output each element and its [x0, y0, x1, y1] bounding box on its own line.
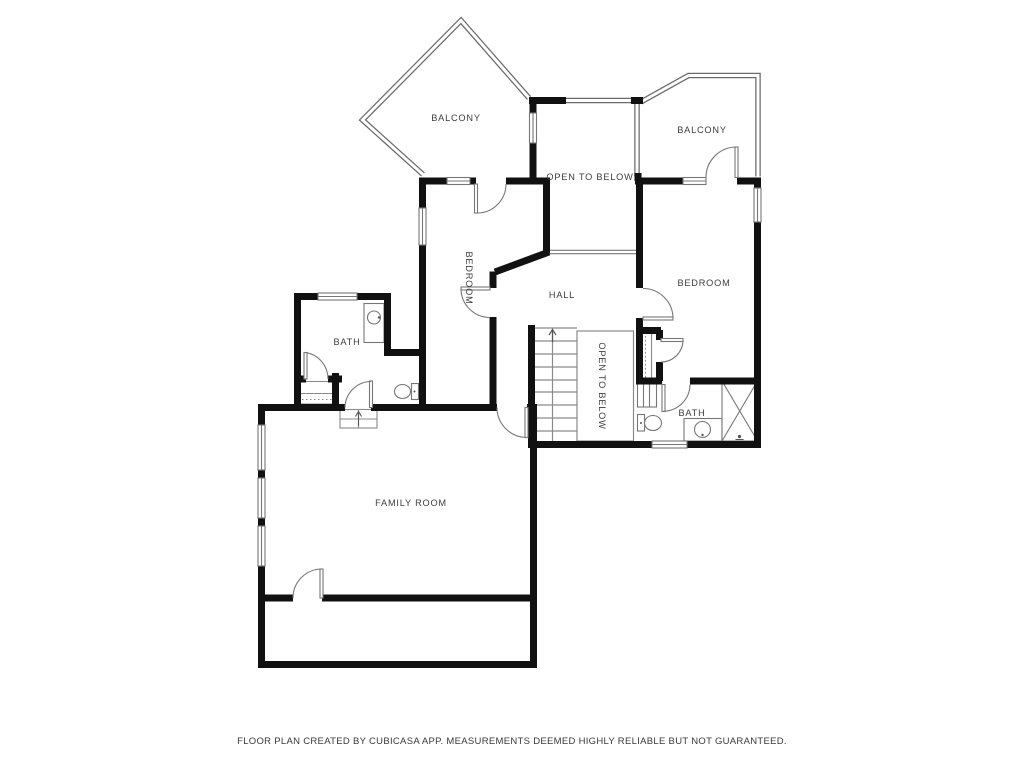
room-label-bedroom-left: BEDROOM [464, 251, 474, 304]
window-icon [258, 526, 265, 566]
window-icon [258, 425, 265, 470]
room-label-bath-left: BATH [333, 337, 360, 347]
room-label-balcony-right: BALCONY [677, 125, 727, 135]
shower-icon [722, 381, 758, 441]
window-icon [683, 178, 706, 185]
wardrobe-dashed [300, 382, 337, 405]
door-swings [293, 147, 738, 598]
entry-steps [340, 410, 377, 429]
window-icon [258, 478, 265, 518]
door-swing-icon [661, 339, 683, 363]
floor-plan-page: PATIO [0, 0, 1024, 768]
room-label-bath-right: BATH [678, 408, 705, 418]
door-swing-icon [497, 408, 528, 438]
stairs [535, 328, 577, 444]
door-swing-icon [475, 184, 507, 213]
room-label-hall: HALL [549, 290, 575, 300]
sink-vanity-left [364, 304, 384, 343]
window-icon [447, 178, 470, 185]
door-swing-icon [643, 289, 673, 321]
door-swing-icon [304, 353, 328, 380]
room-label-family-room: FAMILY ROOM [375, 498, 447, 508]
stairs-up-arrow-icon [549, 330, 556, 343]
door-swing-icon [345, 381, 373, 408]
room-label-open-to-below-stairs: OPEN TO BELOW [597, 342, 607, 429]
footer-disclaimer: FLOOR PLAN CREATED BY CUBICASA APP. MEAS… [237, 736, 787, 747]
door-swing-icon [293, 569, 323, 598]
toilet-right-icon [638, 415, 662, 432]
window-icon [318, 293, 357, 300]
door-swing-icon [706, 147, 738, 178]
window-icon [530, 113, 537, 143]
window-icon [652, 441, 687, 448]
window-icon [419, 208, 426, 245]
room-label-balcony-left: BALCONY [431, 113, 481, 123]
room-label-open-to-below-upper: OPEN TO BELOW [546, 172, 633, 182]
window-icon [754, 188, 761, 222]
floor-plan-drawing: PATIO [0, 0, 1024, 768]
room-label-bedroom-right: BEDROOM [677, 278, 730, 288]
sink-vanity-right [684, 419, 722, 442]
closet-rod-dashed [646, 332, 652, 378]
linen-shelves [638, 384, 657, 408]
toilet-left-icon [395, 384, 419, 400]
